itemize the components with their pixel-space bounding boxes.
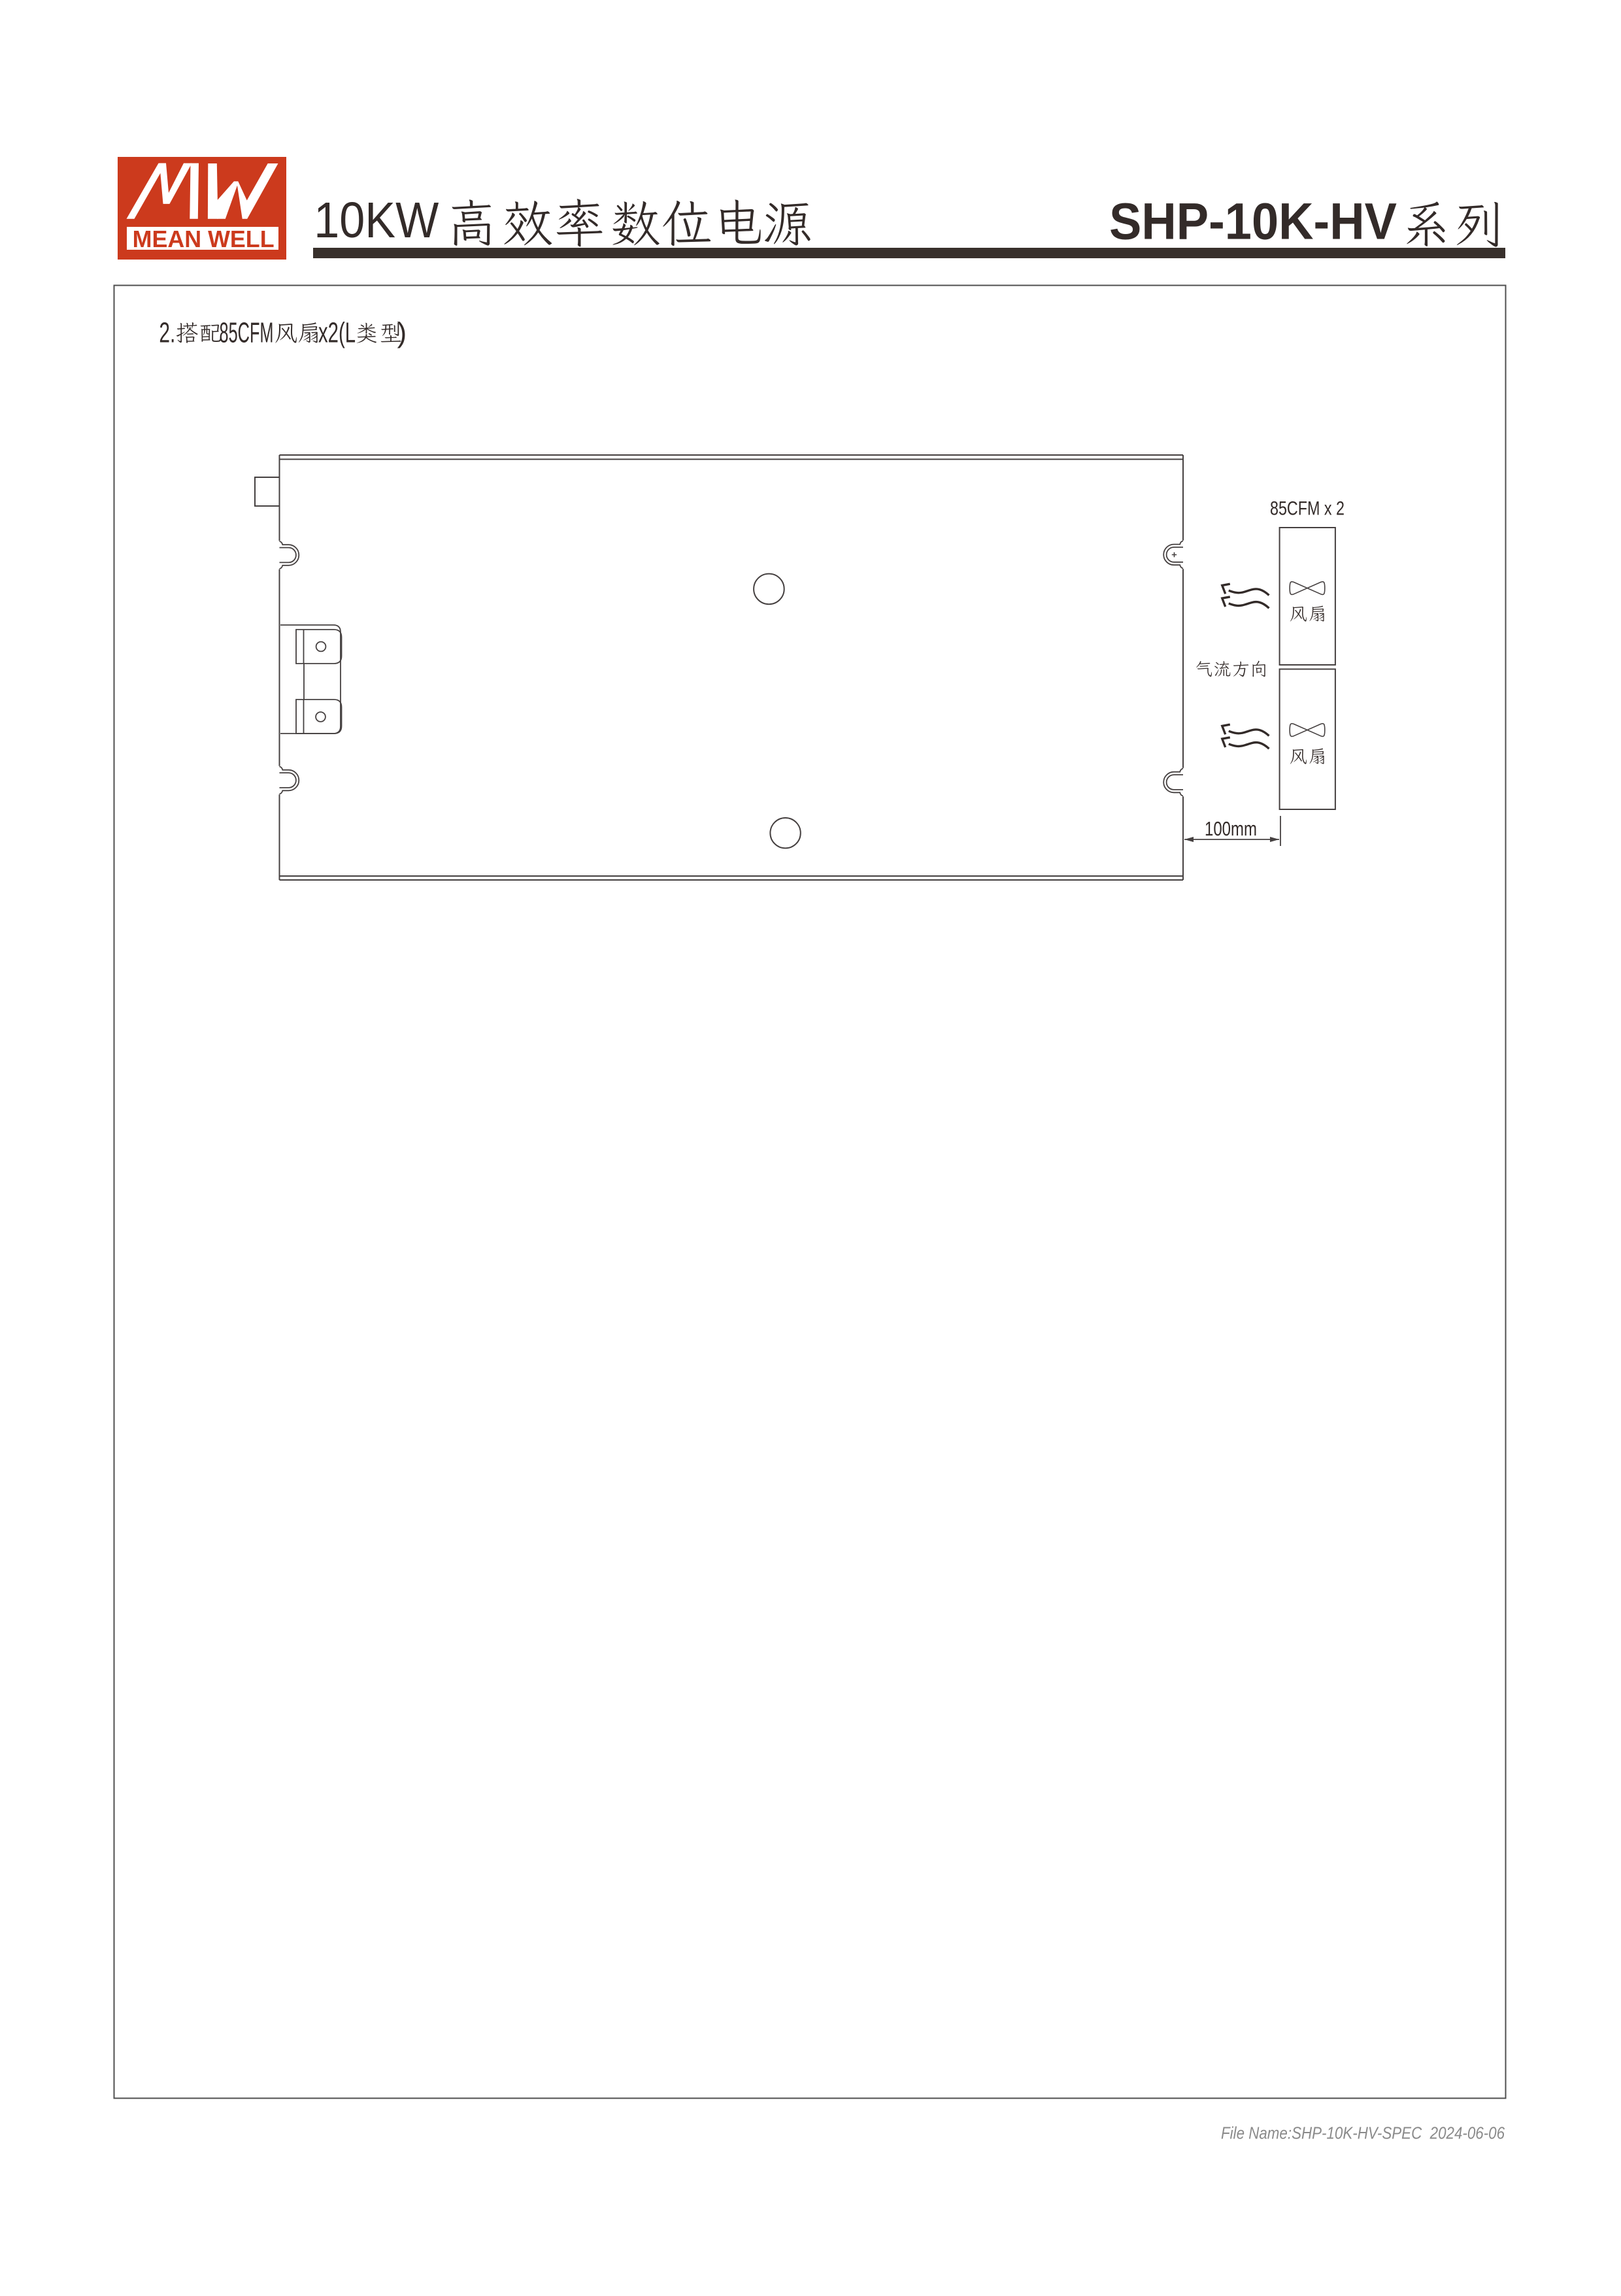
- svg-text:10KW: 10KW: [314, 192, 439, 248]
- svg-text:85CFM: 85CFM: [220, 317, 274, 349]
- svg-text:x2(L: x2(L: [318, 317, 356, 349]
- svg-text:2.: 2.: [159, 317, 175, 349]
- svg-text:File Name:SHP-10K-HV-SPEC 202: File Name:SHP-10K-HV-SPEC 2024-06-06: [1221, 2123, 1505, 2143]
- svg-text:SHP-10K-HV: SHP-10K-HV: [1109, 192, 1397, 250]
- svg-text:85CFM x 2: 85CFM x 2: [1270, 498, 1345, 520]
- svg-text:100mm: 100mm: [1205, 817, 1257, 840]
- svg-text:): ): [397, 317, 407, 349]
- svg-text:MEAN WELL: MEAN WELL: [133, 226, 275, 252]
